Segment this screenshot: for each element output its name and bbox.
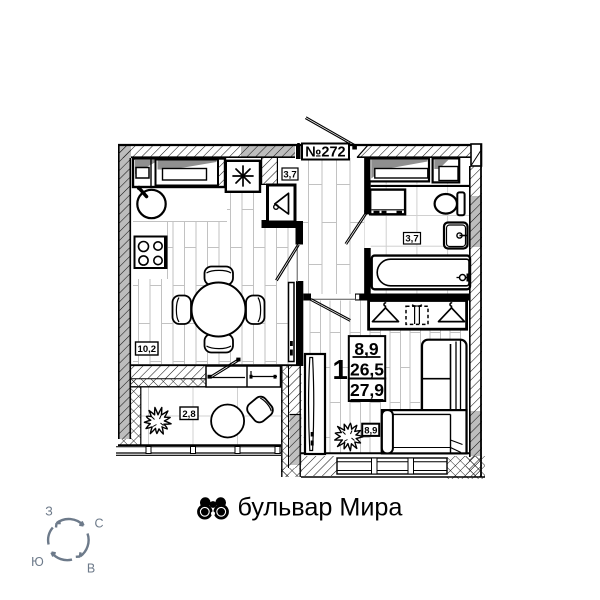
svg-text:27,9: 27,9 xyxy=(350,380,384,400)
svg-text:1: 1 xyxy=(333,354,348,385)
svg-text:С: С xyxy=(94,517,103,531)
svg-text:№272: №272 xyxy=(305,144,345,160)
svg-text:бульвар Мира: бульвар Мира xyxy=(238,494,404,522)
svg-text:3,7: 3,7 xyxy=(405,234,418,245)
svg-text:8,9: 8,9 xyxy=(364,425,377,436)
svg-text:В: В xyxy=(87,562,95,576)
svg-text:8,9: 8,9 xyxy=(354,339,379,359)
svg-text:2,8: 2,8 xyxy=(182,409,195,420)
svg-text:З: З xyxy=(45,505,53,519)
svg-text:3,7: 3,7 xyxy=(283,170,296,181)
svg-text:Ю: Ю xyxy=(31,555,44,569)
svg-text:26,5: 26,5 xyxy=(350,360,384,380)
svg-text:10,2: 10,2 xyxy=(138,344,157,355)
